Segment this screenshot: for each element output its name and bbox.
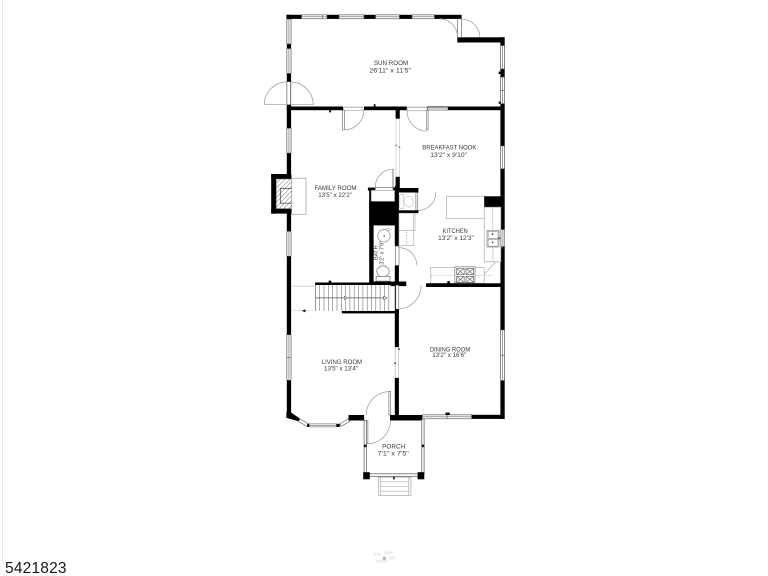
svg-text:13'2" x 12'3": 13'2" x 12'3"	[438, 236, 474, 242]
svg-text:13'2" x 9'10": 13'2" x 9'10"	[430, 153, 467, 159]
svg-text:BREAKFAST NOOK: BREAKFAST NOOK	[422, 144, 477, 151]
svg-text:26'11" x 11'5": 26'11" x 11'5"	[369, 68, 411, 74]
svg-text:13'5" x 13'4": 13'5" x 13'4"	[324, 367, 358, 373]
svg-text:SUN ROOM: SUN ROOM	[374, 60, 408, 67]
svg-text:PORCH: PORCH	[382, 444, 405, 451]
svg-text:13'5" x 22'2": 13'5" x 22'2"	[318, 193, 352, 199]
svg-text:KITCHEN: KITCHEN	[443, 228, 469, 235]
svg-text:3'2" x 7'9": 3'2" x 7'9"	[380, 241, 386, 265]
svg-text:13'2" x 16'6": 13'2" x 16'6"	[432, 353, 466, 359]
svg-text:7'1" x 7'5": 7'1" x 7'5"	[378, 452, 409, 458]
svg-text:LIVING ROOM: LIVING ROOM	[322, 359, 362, 366]
svg-text:FAMILY ROOM: FAMILY ROOM	[314, 185, 356, 192]
svg-text:5421823: 5421823	[5, 560, 67, 576]
